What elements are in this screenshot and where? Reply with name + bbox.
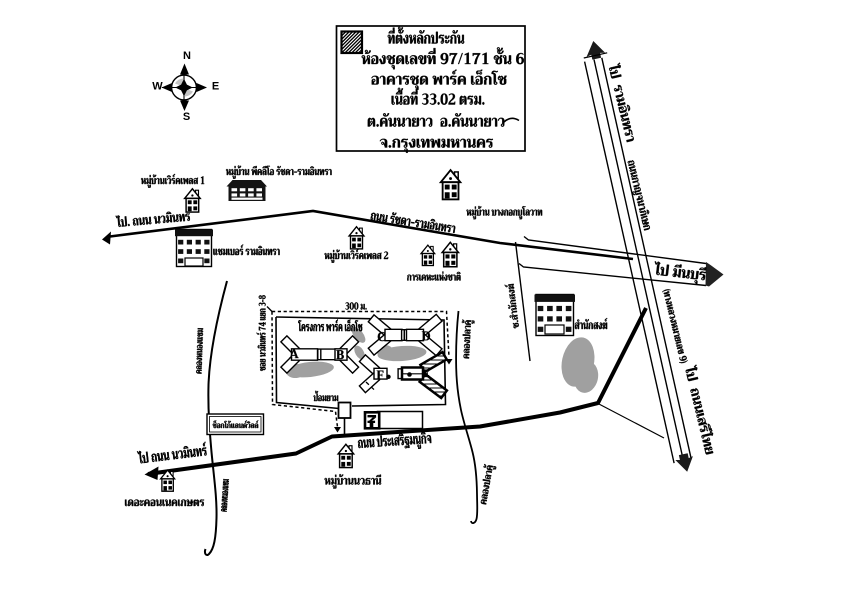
svg-text:S: S <box>183 111 190 123</box>
svg-text:N: N <box>183 50 191 62</box>
svg-text:W: W <box>152 81 163 93</box>
svg-text:E: E <box>212 81 219 93</box>
